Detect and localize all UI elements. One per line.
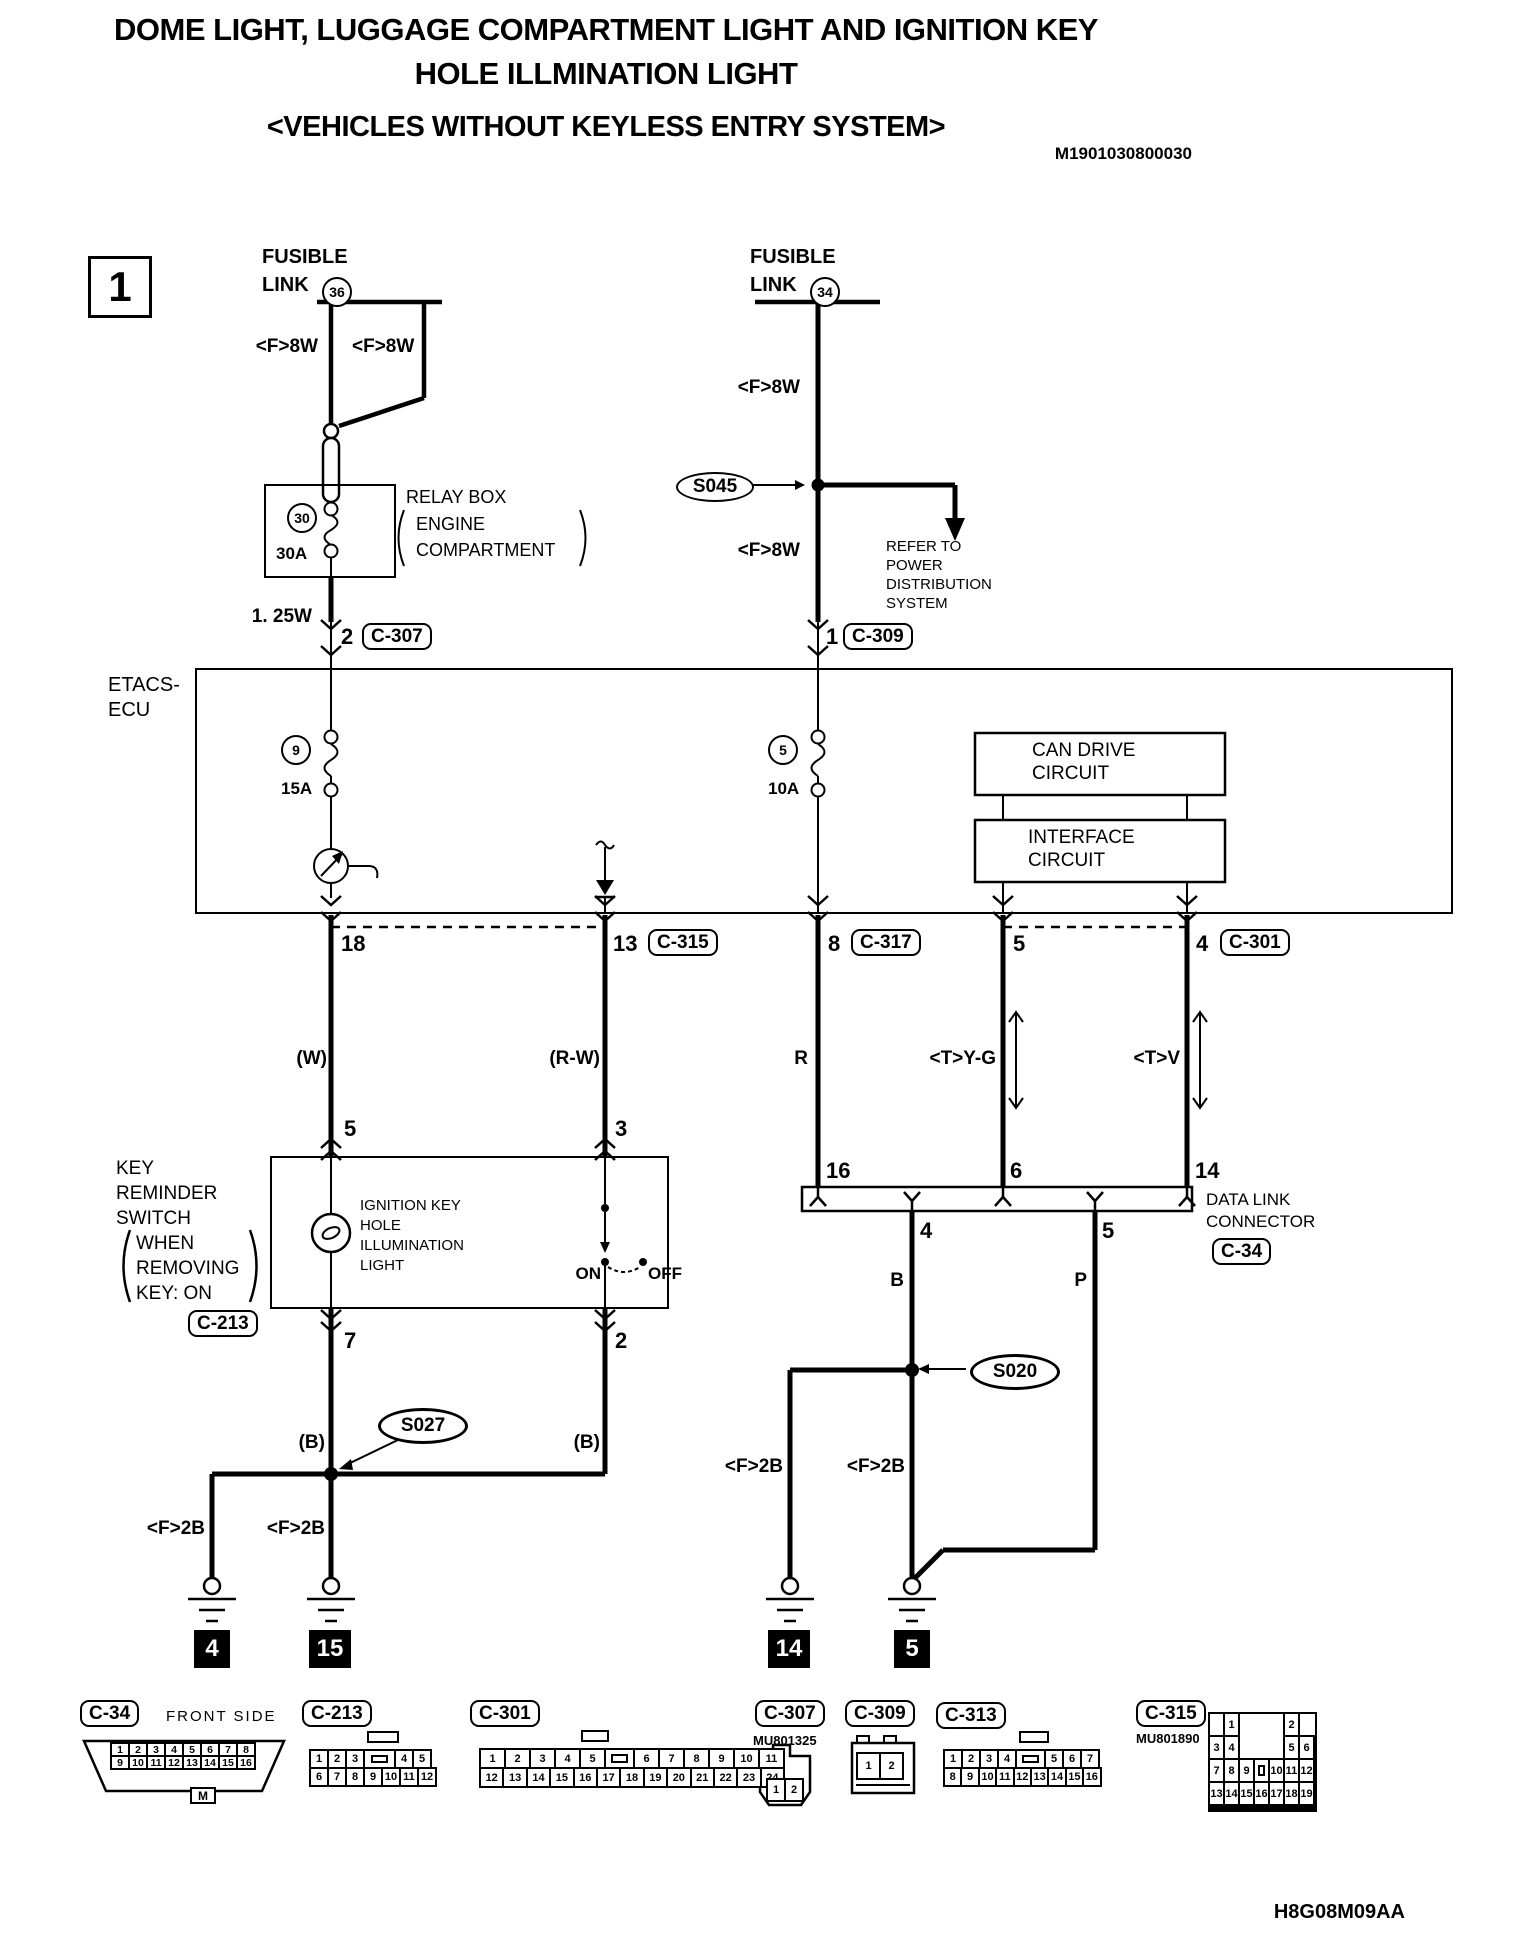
pin-4-label: 4 [1196, 931, 1208, 957]
wire-size-f2b-label: <F>2B [839, 1456, 905, 1478]
connector-pin-cell: 4 [394, 1749, 414, 1769]
switch-off-label: OFF [648, 1264, 682, 1284]
connector-c315-part-code: MU801890 [1136, 1731, 1200, 1746]
connector-c301-pinout: 123456789101112131415161718192021222324 [481, 1750, 785, 1788]
connector-pin-cell: 1 [856, 1752, 881, 1780]
fusible-link-left-number: 36 [322, 277, 352, 307]
connector-c309-badge: C-309 [843, 623, 913, 650]
key-pin-7-label: 7 [344, 1328, 356, 1354]
refer-note-line1: REFER TO [886, 538, 961, 556]
wire-color-p: P [1057, 1270, 1087, 1292]
connector-pin-cell: 5 [579, 1748, 606, 1769]
refer-note-line4: SYSTEM [886, 595, 948, 613]
connector-c307-badge: C-307 [362, 623, 432, 650]
fusible-link-right-label1: FUSIBLE [750, 246, 836, 270]
data-link-connector-box [802, 1187, 1195, 1211]
connector-key-tab-inner [1022, 1755, 1038, 1764]
connector-c301-badge: C-301 [1220, 929, 1290, 956]
connector-pin-cell: 1 [766, 1778, 786, 1802]
connector-pin-cell: 13 [502, 1767, 527, 1788]
footer-c213-badge: C-213 [302, 1700, 372, 1727]
connector-pin-cell: 9 [363, 1767, 383, 1787]
pin-1-label: 1 [826, 624, 838, 650]
connector-pin-cell: 5 [412, 1749, 432, 1769]
keyhole-light-label1: IGNITION KEY [360, 1197, 461, 1215]
etacs-fuse9-number: 9 [281, 735, 311, 765]
connector-pin-cell: 7 [1080, 1749, 1100, 1769]
relay-fuse-number: 30 [287, 503, 317, 533]
key-reminder-line5: REMOVING [136, 1258, 239, 1280]
ignition-keyhole-bulb-icon [312, 1157, 350, 1308]
page-title-line1: DOME LIGHT, LUGGAGE COMPARTMENT LIGHT AN… [0, 12, 1212, 49]
connector-key-tab [363, 1749, 396, 1769]
wire-color-b: B [874, 1270, 904, 1292]
dlc-pin-4-label: 4 [920, 1218, 932, 1244]
connector-pin-cell: 19 [643, 1767, 668, 1788]
front-side-note: FRONT SIDE [166, 1708, 277, 1725]
connector-pin-row: 12 [768, 1780, 804, 1802]
connector-pin-cell: 12 [164, 1755, 184, 1770]
connector-c309-pinout: 12 [858, 1754, 904, 1780]
wire-color-v: <T>V [1118, 1048, 1180, 1070]
connector-pin-cell: 10 [381, 1767, 401, 1787]
etacs-fuse-5-icon [812, 669, 825, 913]
fusible-link-left-label2: LINK [262, 274, 309, 298]
dlc-pin-6-label: 6 [1010, 1158, 1022, 1184]
etacs-fuse-9-icon [325, 669, 338, 849]
page-subtitle: <VEHICLES WITHOUT KEYLESS ENTRY SYSTEM> [0, 110, 1212, 144]
connector-pin-cell: 8 [683, 1748, 710, 1769]
connector-pin-cell: 2 [879, 1752, 904, 1780]
ground-icon [307, 1578, 355, 1621]
splice-s045-junction [753, 479, 965, 542]
connector-pin-cell: 2 [961, 1749, 981, 1769]
connector-empty-cell [1298, 1712, 1315, 1737]
key-reminder-line1: KEY [116, 1158, 154, 1180]
connector-pin-cell: 14 [200, 1755, 220, 1770]
footer-c301-badge: C-301 [470, 1700, 540, 1727]
relay-box-name: RELAY BOX [406, 487, 506, 508]
connector-pin-cell: 17 [596, 1767, 621, 1788]
connector-pin-row: 3456 [1210, 1737, 1315, 1760]
connector-pin-cell: 3 [345, 1749, 365, 1769]
wire-size-125w-label: 1. 25W [232, 606, 312, 628]
footer-c307-badge: C-307 [755, 1700, 825, 1727]
connector-c213-badge: C-213 [188, 1310, 258, 1337]
connector-pin-cell: 4 [997, 1749, 1017, 1769]
relay-box-location2: COMPARTMENT [416, 540, 555, 561]
connector-c213-pinout: 123456789101112 [311, 1751, 437, 1787]
connector-pin-cell: 9 [110, 1755, 130, 1770]
etacs-fuse9-rating: 15A [281, 779, 312, 799]
section-number-box: 1 [88, 256, 152, 318]
splice-s020-junction [905, 1363, 966, 1377]
keyhole-light-label4: LIGHT [360, 1257, 404, 1275]
connector-pin-cell: 10 [128, 1755, 148, 1770]
footer-c315-badge: C-315 [1136, 1700, 1206, 1727]
ground-4-number: 4 [194, 1630, 230, 1668]
wire-size-f8w-label: <F>8W [734, 540, 800, 562]
connector-pin-cell: 5 [1044, 1749, 1064, 1769]
keyhole-light-label3: ILLUMINATION [360, 1237, 464, 1255]
refer-note-line3: DISTRIBUTION [886, 576, 992, 594]
etacs-label-line1: ETACS- [108, 674, 180, 698]
key-pin-2-label: 2 [615, 1328, 627, 1354]
fusible-link-right-number: 34 [810, 277, 840, 307]
connector-key-tab [1015, 1749, 1046, 1769]
connector-key-tab-inner [1258, 1765, 1266, 1777]
connector-pin-cell: 2 [504, 1748, 531, 1769]
dlc-pin-5-label: 5 [1102, 1218, 1114, 1244]
connector-pin-cell: 6 [1062, 1749, 1082, 1769]
wire-color-b-right: (B) [560, 1432, 600, 1454]
etacs-fuse5-number: 5 [768, 735, 798, 765]
connector-pin-cell: 7 [658, 1748, 685, 1769]
connector-pin-cell: 16 [1082, 1767, 1101, 1787]
pin-13-label: 13 [613, 931, 637, 957]
wire-color-w: (W) [282, 1048, 327, 1070]
connector-c315-badge: C-315 [648, 929, 718, 956]
connector-c315-pinout: 12345678910111213141516171819 [1208, 1712, 1317, 1812]
page-title-line2: HOLE ILLMINATION LIGHT [0, 56, 1212, 93]
transistor-icon [314, 849, 377, 898]
splice-s020-label: S020 [970, 1354, 1060, 1390]
connector-pin-cell: 1 [309, 1749, 329, 1769]
drawing-code: H8G08M09AA [1245, 1901, 1405, 1925]
connector-pin-cell: 13 [182, 1755, 202, 1770]
connector-pin-cell: 12 [417, 1767, 437, 1787]
connector-pin-row: 13141516171819 [1210, 1783, 1315, 1806]
harness-wires [331, 915, 1187, 1187]
wire-color-yg: <T>Y-G [908, 1048, 996, 1070]
etacs-label-line2: ECU [108, 699, 150, 723]
wire-color-b-left: (B) [285, 1432, 325, 1454]
wire-size-f8w-label: <F>8W [734, 377, 800, 399]
connector-c34-badge: C-34 [1212, 1238, 1271, 1265]
can-drive-circuit-label2: CIRCUIT [1032, 763, 1109, 785]
interface-circuit-label2: CIRCUIT [1028, 850, 1105, 872]
ground-5-number: 5 [894, 1630, 930, 1668]
dlc-name-line2: CONNECTOR [1206, 1212, 1315, 1232]
connector-pin-row: 8910111213141516 [945, 1769, 1102, 1787]
connector-c307-part-code: MU801325 [753, 1733, 817, 1748]
key-pin-5-label: 5 [344, 1116, 356, 1142]
connector-pin-cell: 4 [554, 1748, 581, 1769]
connector-key-tab [1253, 1758, 1270, 1783]
wire-size-f8w-label: <F>8W [252, 336, 318, 358]
connector-pin-cell: 14 [526, 1767, 551, 1788]
fusible-link-right-label2: LINK [750, 274, 797, 298]
pin-8-label: 8 [828, 931, 840, 957]
key-reminder-line3: SWITCH [116, 1208, 191, 1230]
splice-s027-label: S027 [378, 1408, 468, 1444]
connector-pin-cell: 1 [479, 1748, 506, 1769]
pin-5-label: 5 [1013, 931, 1025, 957]
connector-pin-cell: 20 [666, 1767, 691, 1788]
connector-pin-cell: 18 [619, 1767, 644, 1788]
connector-pin-cell: 11 [399, 1767, 419, 1787]
splice-s045-label: S045 [676, 472, 754, 502]
connector-key-tab [604, 1748, 635, 1769]
connector-pin-cell: 3 [979, 1749, 999, 1769]
footer-c34-badge: C-34 [80, 1700, 139, 1727]
connector-pin-cell: 12 [1298, 1758, 1315, 1783]
connector-pin-cell: 12 [479, 1767, 504, 1788]
connector-pin-cell: 2 [327, 1749, 347, 1769]
connector-pin-cell: 9 [708, 1748, 735, 1769]
connector-c34-pinout: 12345678910111213141516 [101, 1744, 267, 1770]
connector-pin-cell: 6 [309, 1767, 329, 1787]
refer-note-line2: POWER [886, 557, 943, 575]
ground-14-number: 14 [768, 1630, 810, 1668]
connector-pin-cell: 16 [573, 1767, 598, 1788]
dlc-pin-14-label: 14 [1195, 1158, 1219, 1184]
connector-pin-cell: 15 [218, 1755, 238, 1770]
relay-fuse-icon [325, 503, 338, 578]
key-switch-contact-icon [600, 1157, 647, 1308]
can-drive-circuit-label1: CAN DRIVE [1032, 740, 1135, 762]
wire-size-f2b-label: <F>2B [139, 1518, 205, 1540]
connector-pin-cell: 21 [690, 1767, 715, 1788]
etacs-fuse5-rating: 10A [768, 779, 799, 799]
keyhole-light-label2: HOLE [360, 1217, 401, 1235]
connector-pin-cell: 1 [943, 1749, 963, 1769]
footer-c313-badge: C-313 [936, 1702, 1006, 1729]
connector-pin-row: 12 [858, 1754, 904, 1780]
fusible-link-capsule-icon [323, 424, 339, 502]
wire-color-r: R [778, 1048, 808, 1070]
dlc-pin-16-label: 16 [826, 1158, 850, 1184]
wire-size-f8w-label: <F>8W [352, 336, 414, 358]
ground-wiring-right [790, 1211, 1095, 1581]
connector-pin-cell: 11 [758, 1748, 785, 1769]
connector-pin-row: 910111213141516 [112, 1757, 256, 1770]
pin-18-label: 18 [341, 931, 365, 957]
dlc-name-line1: DATA LINK [1206, 1190, 1290, 1210]
connector-pin-row: 12131415161718192021222324 [481, 1769, 785, 1788]
wire-size-f2b-label: <F>2B [259, 1518, 325, 1540]
connector-pin-cell: 16 [236, 1755, 256, 1770]
connector-pin-cell: 23 [736, 1767, 761, 1788]
connector-pin-cell: 3 [529, 1748, 556, 1769]
relay-box-location1: ENGINE [416, 514, 485, 535]
doc-number: M1901030800030 [1032, 144, 1192, 164]
connector-key-tab-inner [371, 1755, 388, 1764]
connector-pin-cell: 11 [146, 1755, 166, 1770]
connector-c34-bottom-tab: M [190, 1787, 216, 1804]
connector-c317-badge: C-317 [851, 929, 921, 956]
switch-on-label: ON [561, 1264, 601, 1284]
ground-symbols [188, 1578, 936, 1621]
ground-15-number: 15 [309, 1630, 351, 1668]
connector-pin-cell: 6 [1298, 1735, 1315, 1760]
wire-size-f2b-label: <F>2B [717, 1456, 783, 1478]
connector-pin-row: 789101112 [1210, 1760, 1315, 1783]
connector-pin-cell: 6 [633, 1748, 660, 1769]
connector-pin-cell: 15 [549, 1767, 574, 1788]
etacs-bottom-pin-arrows [321, 896, 1197, 927]
diode-icon [595, 842, 615, 914]
connector-key-tab-inner [611, 1754, 627, 1763]
key-pin-3-label: 3 [615, 1116, 627, 1142]
key-reminder-line4: WHEN [136, 1233, 194, 1255]
connector-pin-cell: 8 [345, 1767, 365, 1787]
key-reminder-line2: REMINDER [116, 1183, 217, 1205]
connector-pin-row: 12 [1210, 1714, 1315, 1737]
connector-pin-cell: 7 [327, 1767, 347, 1787]
relay-fuse-rating: 30A [276, 544, 307, 564]
footer-c309-badge: C-309 [845, 1700, 915, 1727]
ground-icon [188, 1578, 236, 1621]
ground-icon [888, 1578, 936, 1621]
connector-pin-cell: 2 [784, 1778, 804, 1802]
connector-pin-cell: 19 [1298, 1781, 1315, 1806]
key-reminder-line6: KEY: ON [136, 1283, 212, 1305]
fusible-link-left-label1: FUSIBLE [262, 246, 348, 270]
connector-c307-pinout: 12 [768, 1780, 804, 1802]
ground-icon [766, 1578, 814, 1621]
connector-pin-cell: 10 [733, 1748, 760, 1769]
wiring-diagram-page: DOME LIGHT, LUGGAGE COMPARTMENT LIGHT AN… [0, 0, 1520, 1954]
pin-2-label: 2 [341, 624, 353, 650]
connector-c313-pinout: 12345678910111213141516 [945, 1751, 1102, 1787]
connector-pin-cell: 22 [713, 1767, 738, 1788]
interface-circuit-label1: INTERFACE [1028, 827, 1135, 849]
wire-color-rw: (R-W) [520, 1048, 600, 1070]
connector-pin-row: 6789101112 [311, 1769, 437, 1787]
